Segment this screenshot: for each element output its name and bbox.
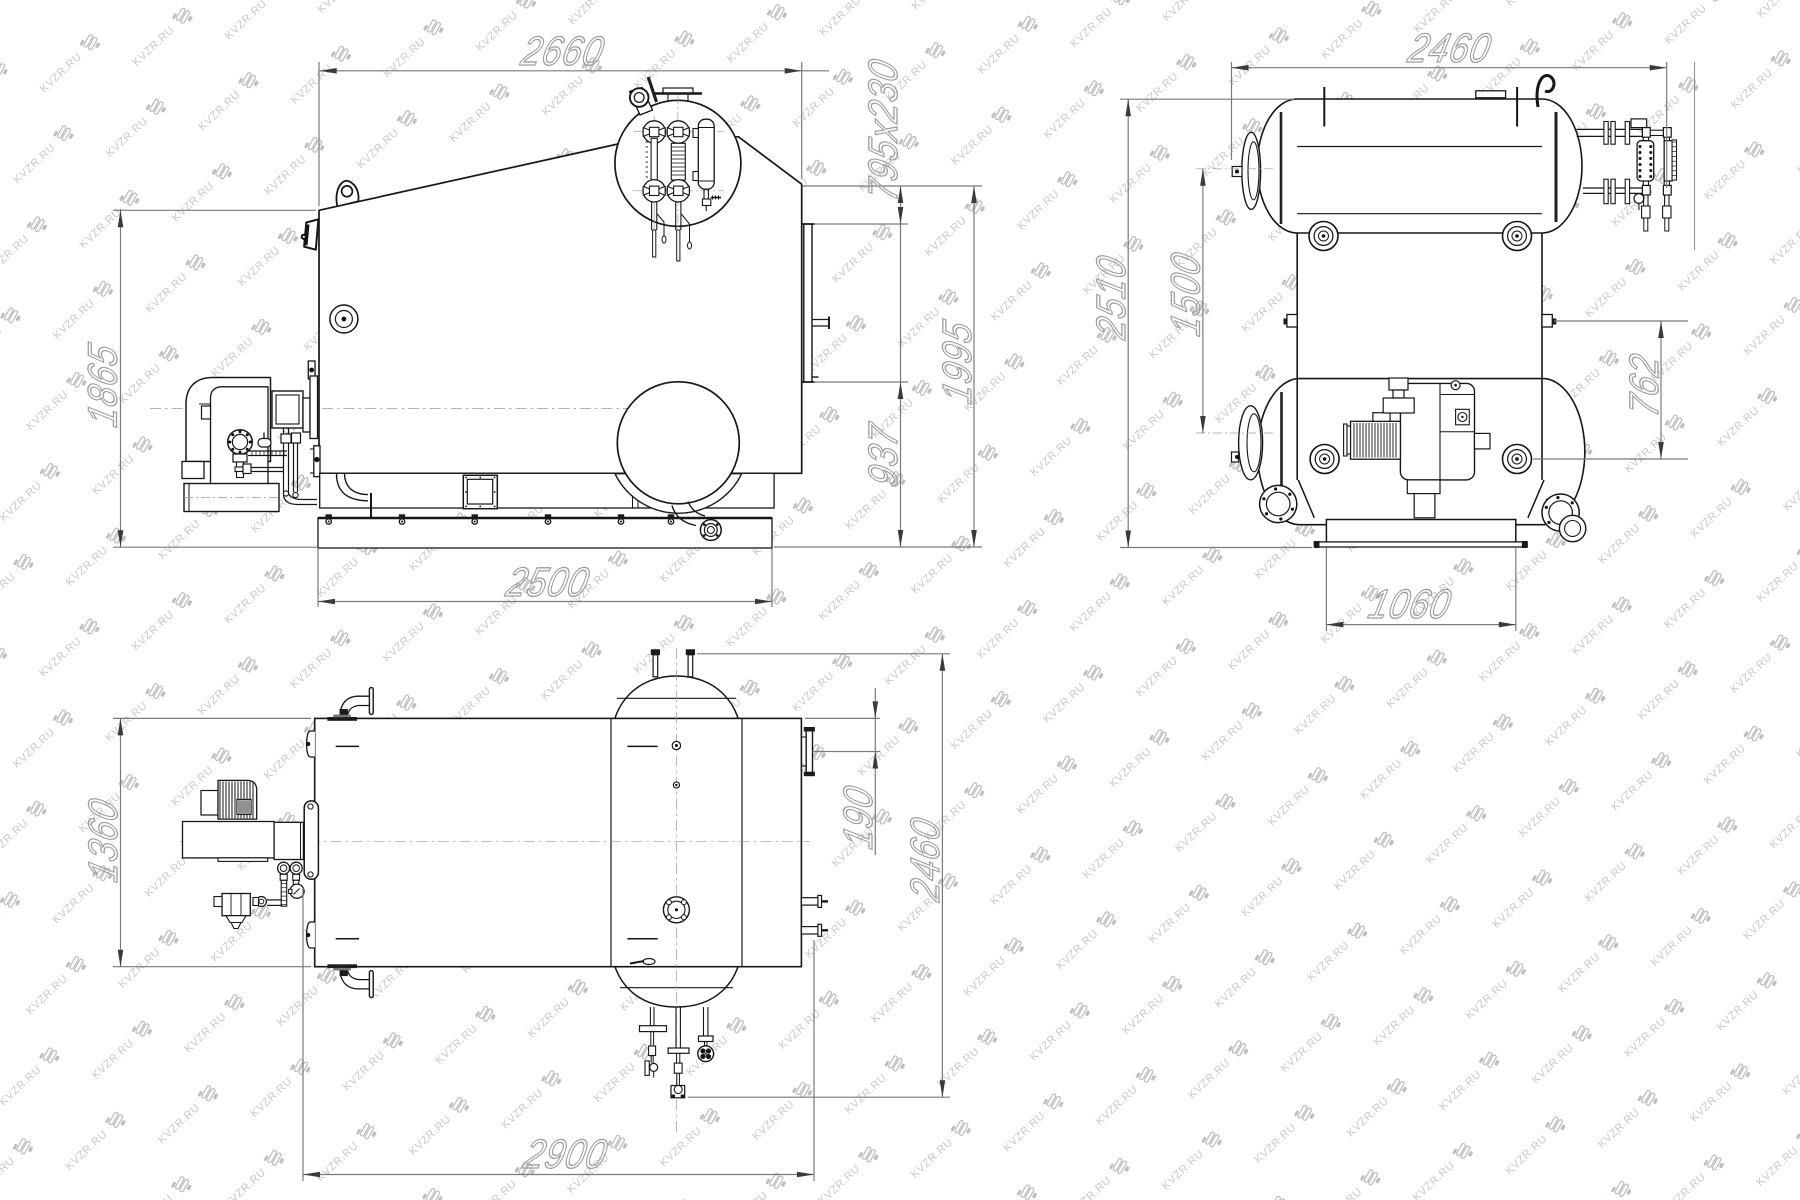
svg-text:1060: 1060 bbox=[1364, 582, 1455, 628]
svg-text:2510: 2510 bbox=[1089, 251, 1135, 343]
svg-text:2660: 2660 bbox=[516, 29, 608, 75]
svg-text:190: 190 bbox=[836, 781, 882, 852]
svg-text:1865: 1865 bbox=[80, 339, 126, 430]
svg-text:795х230: 795х230 bbox=[861, 55, 907, 205]
svg-text:1995: 1995 bbox=[935, 316, 981, 407]
svg-text:1500: 1500 bbox=[1163, 248, 1209, 339]
svg-text:2500: 2500 bbox=[501, 560, 593, 606]
svg-text:937: 937 bbox=[861, 419, 907, 491]
svg-text:2900: 2900 bbox=[519, 1132, 611, 1178]
svg-text:2460: 2460 bbox=[903, 813, 949, 905]
svg-text:762: 762 bbox=[1622, 349, 1668, 420]
svg-text:1360: 1360 bbox=[81, 794, 127, 885]
svg-text:2460: 2460 bbox=[1403, 26, 1495, 72]
